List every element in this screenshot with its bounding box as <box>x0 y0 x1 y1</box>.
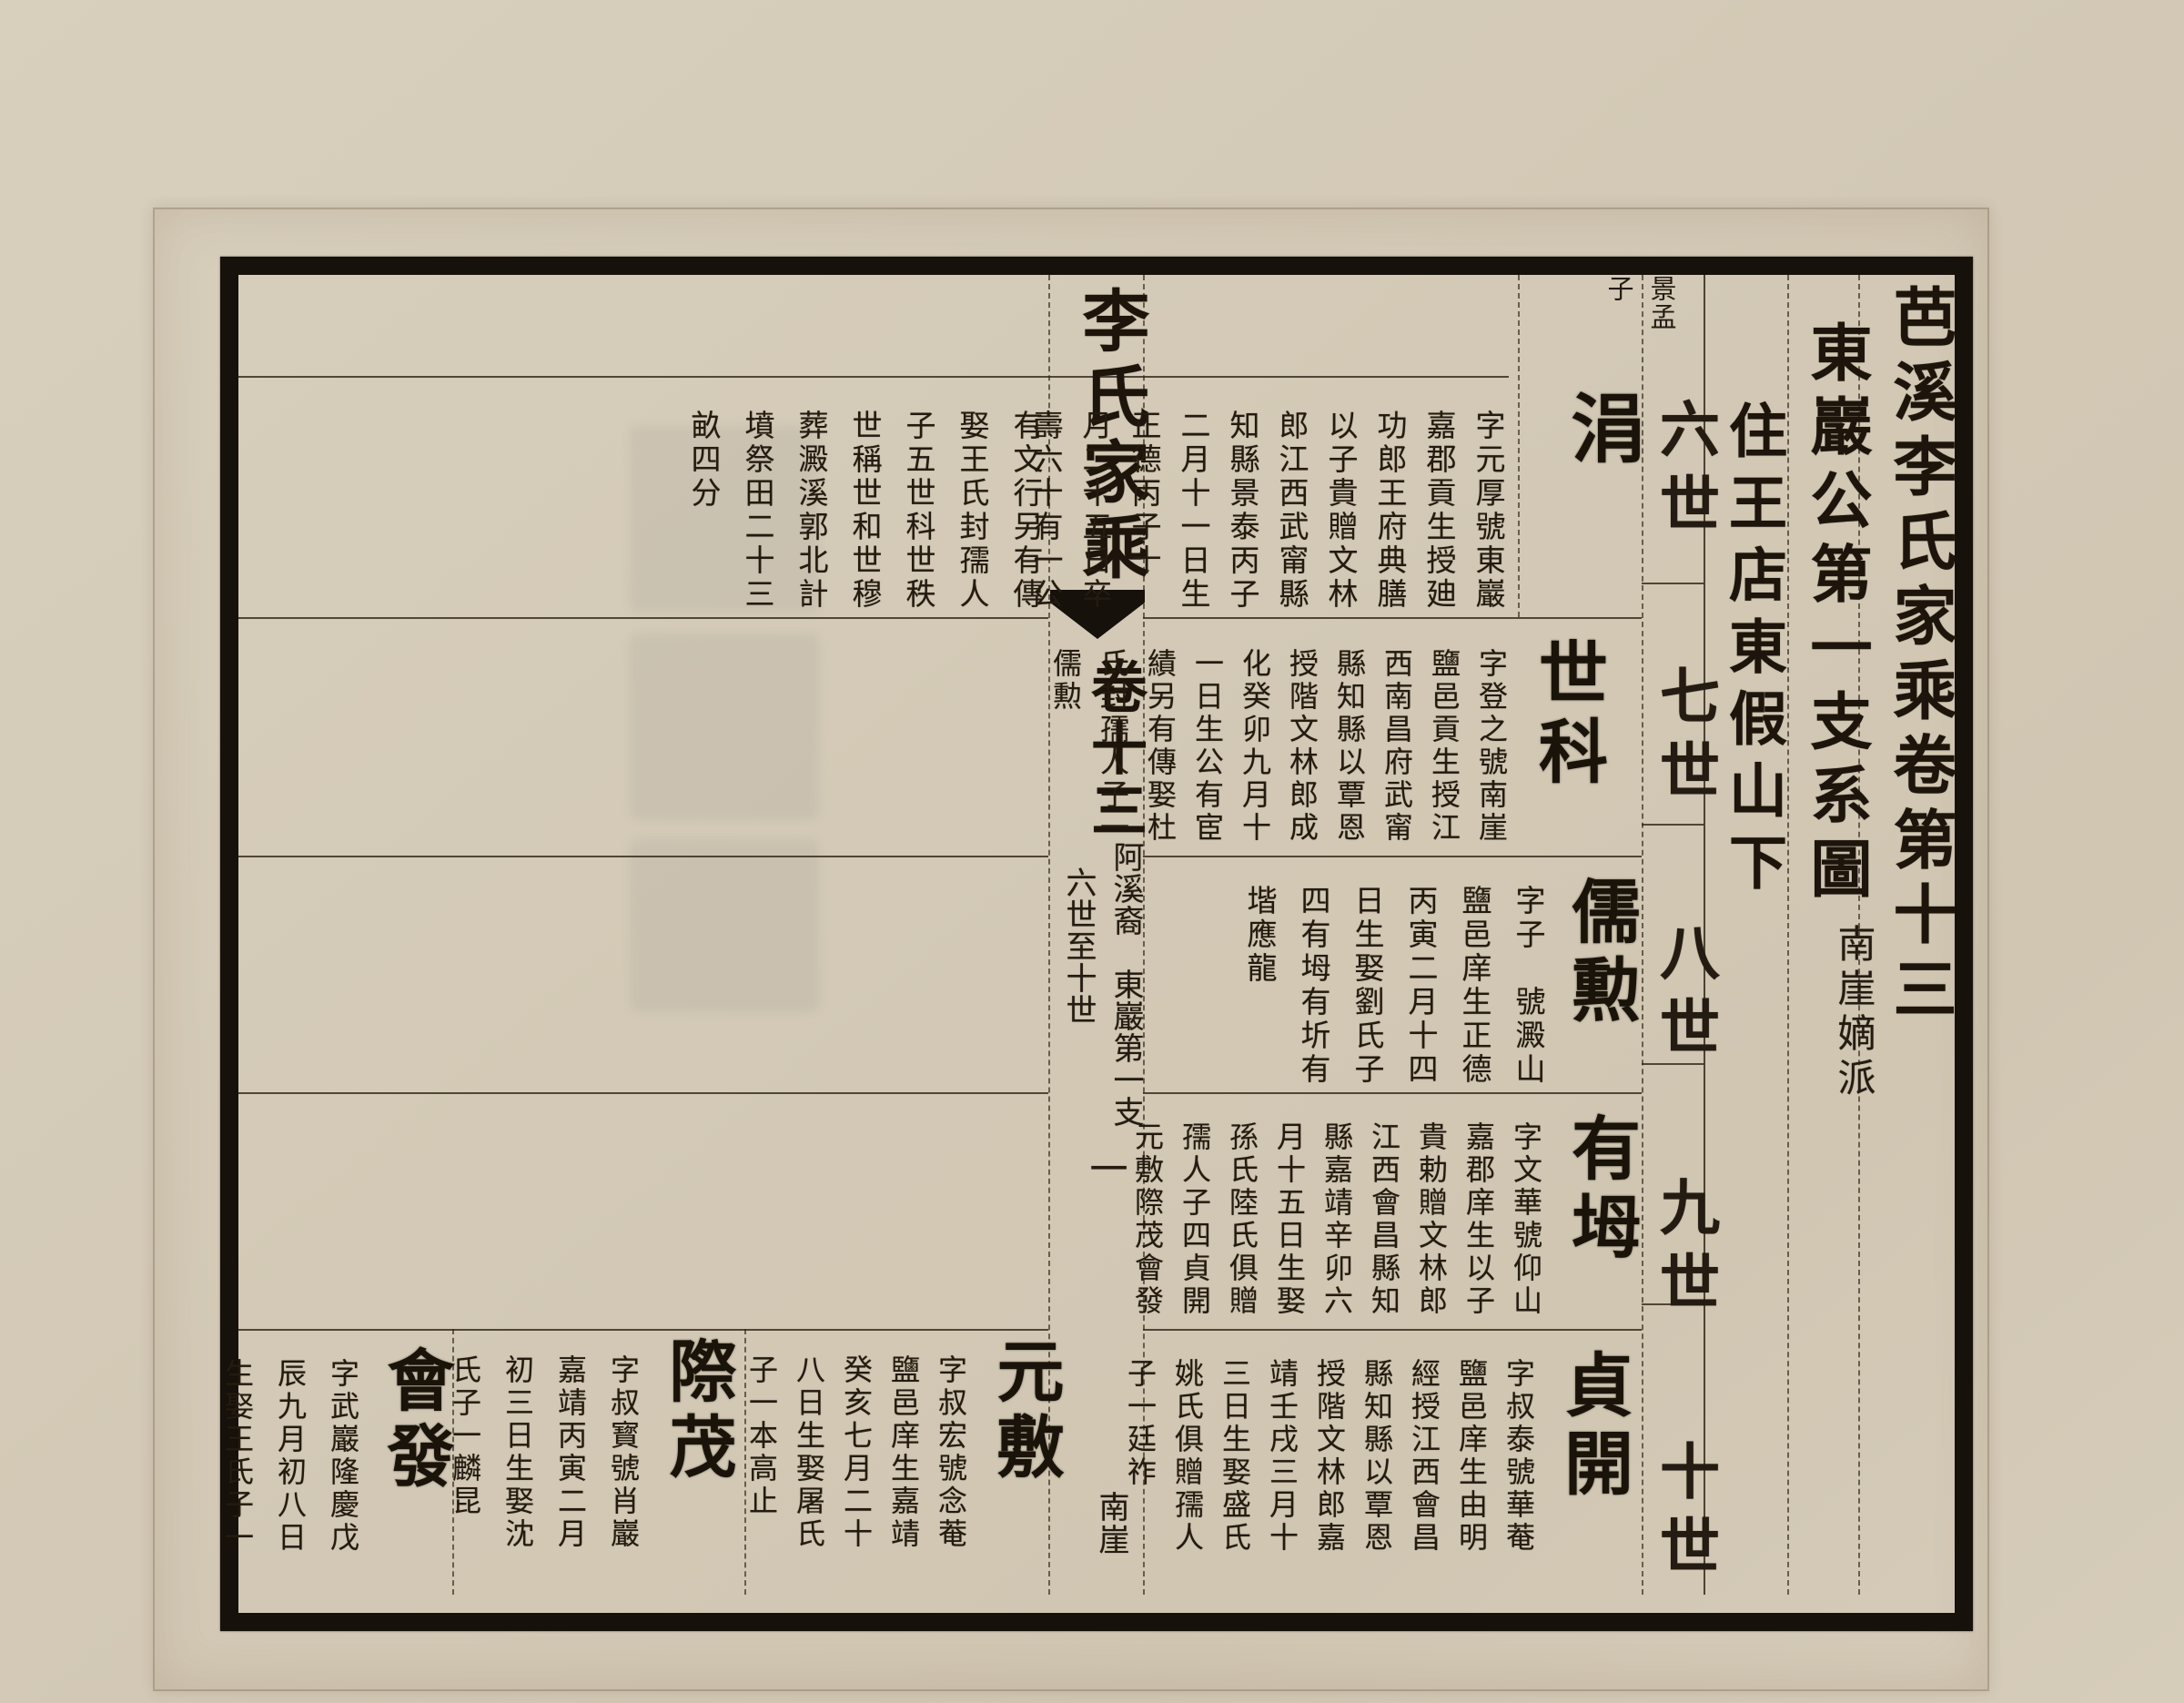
label-cell-divider <box>1642 824 1704 826</box>
bio-column: 縣嘉靖辛卯六 <box>1316 1121 1358 1323</box>
band-divider <box>238 376 1509 378</box>
band-divider <box>238 1092 1048 1094</box>
bio-column: 字子 號澱山 <box>1505 885 1549 1089</box>
bio-column: 子一廷祚 <box>1119 1358 1161 1560</box>
bio-column: 姚氏俱贈孺人 <box>1167 1358 1208 1560</box>
bio-column: 子一本高止 <box>741 1354 783 1556</box>
bio-column: 鹽邑庠生嘉靖 <box>883 1354 925 1556</box>
bio-column: 鹽邑庠生由明 <box>1451 1358 1492 1560</box>
bio-column: 孫氏陸氏俱贈 <box>1221 1121 1263 1323</box>
bio-column: 績另有傳娶杜 <box>1139 648 1181 850</box>
parent-name: 景孟 <box>1642 275 1680 393</box>
person-name-yuanfu: 元敷 <box>976 1336 1073 1487</box>
bio-column: 月十五日生娶 <box>1269 1121 1310 1323</box>
bio-column: 貴勅贈文林郎 <box>1410 1121 1452 1323</box>
bio-column: 日生娶劉氏子 <box>1344 885 1388 1089</box>
person-bio-huifa: 字武巖隆慶戊辰九月初八日生娶王氏子一 <box>238 1358 364 1560</box>
generation-label-10: 十世 <box>1640 1440 1727 1589</box>
band-divider <box>1143 1329 1642 1331</box>
bio-column: 孺人子四貞開 <box>1174 1121 1216 1323</box>
bio-column: 功郎王府典膳 <box>1367 410 1410 624</box>
bio-column: 氏封孺人子一 <box>1092 648 1134 850</box>
branch-subnote: 南崖嫡派 <box>1825 924 1881 1102</box>
person-name-jimao: 際茂 <box>648 1336 745 1487</box>
bio-column: 字元厚號東巖 <box>1465 410 1509 624</box>
bio-column: 鹽邑庠生正德 <box>1451 885 1495 1089</box>
bio-column: 有文行另有傳 <box>1003 410 1046 624</box>
spine-branch-note: 阿溪裔 東巖第一支 <box>1103 841 1148 1128</box>
parent-reference: 景孟 子 <box>1594 275 1680 393</box>
person-bio-yuanfu: 字叔宏號念菴鹽邑庠生嘉靖癸亥七月二十八日生娶屠氏子一本高止 <box>797 1354 972 1556</box>
bio-column: 以子貴贈文林 <box>1318 410 1361 624</box>
generation-label-8: 八世 <box>1640 921 1727 1070</box>
bio-column: 月二十五日卒 <box>1072 410 1116 624</box>
bio-column: 娶王氏封孺人 <box>949 410 993 624</box>
parent-suffix: 子 <box>1599 275 1637 393</box>
bio-column: 三日生娶盛氏 <box>1214 1358 1256 1560</box>
generation-label-9: 九世 <box>1640 1176 1727 1325</box>
genealogy-scan-page: 芭溪李氏家乘卷第十三 東巖公第一支系圖 南崖嫡派 住王店東假山下 六世 七世 八… <box>0 0 2184 1703</box>
person-bio-ruxun: 字子 號澱山鹽邑庠生正德丙寅二月十四日生娶劉氏子四有坶有圻有堦應龍 <box>1299 885 1549 1089</box>
bio-column: 嘉郡庠生以子 <box>1458 1121 1500 1323</box>
bio-column: 辰九月初八日 <box>269 1358 311 1560</box>
bio-column: 四有坶有圻有 <box>1290 885 1334 1089</box>
bio-column: 授階文林郎嘉 <box>1309 1358 1350 1560</box>
cell-divider <box>1518 275 1520 617</box>
band-divider <box>238 856 1048 857</box>
bio-column: 字叔寳號肖巖 <box>602 1354 644 1556</box>
bio-column: 儒勲 <box>1045 648 1087 850</box>
bio-column: 授階文林郎成 <box>1281 648 1323 850</box>
band-divider <box>238 1329 1048 1331</box>
bio-column: 字文華號仰山 <box>1505 1121 1547 1323</box>
person-bio-juan: 字元厚號東巖嘉郡貢生授廸功郎王府典膳以子貴贈文林郎江西武甯縣知縣景泰丙子二月十一… <box>1148 410 1509 624</box>
bio-column: 郎江西武甯縣 <box>1269 410 1312 624</box>
bio-column: 葬澱溪郭北計 <box>788 410 832 624</box>
bio-column: 鹽邑貢生授江 <box>1423 648 1465 850</box>
bio-column: 字武巖隆慶戊 <box>322 1358 364 1560</box>
bio-column: 生娶王氏子一 <box>217 1358 258 1560</box>
person-name-zhenkai: 貞開 <box>1542 1349 1642 1505</box>
band-divider <box>1143 1092 1642 1094</box>
bio-column: 一日生公有宦 <box>1187 648 1228 850</box>
bio-column: 縣知縣以覃恩 <box>1329 648 1370 850</box>
bio-column: 靖壬戌三月十 <box>1261 1358 1303 1560</box>
bio-column: 經授江西會昌 <box>1403 1358 1445 1560</box>
spine-page-number: 一 <box>1077 1149 1133 1187</box>
bio-column: 元敷際茂會發 <box>1127 1121 1168 1323</box>
person-bio-juan-continued: 有文行另有傳娶王氏封孺人子五世科世秩世稱世和世穆葬澱溪郭北計墳祭田二十三畝四分 <box>766 410 1046 624</box>
band-divider <box>1143 856 1642 857</box>
bio-column: 字叔宏號念菴 <box>930 1354 972 1556</box>
bio-column: 丙寅二月十四 <box>1398 885 1441 1089</box>
person-bio-shike: 字登之號南崖鹽邑貢生授江西南昌府武甯縣知縣以覃恩授階文林郎成化癸卯九月十一日生公… <box>1165 648 1512 850</box>
bio-column: 初三日生娶沈 <box>497 1354 539 1556</box>
bio-column: 知縣景泰丙子 <box>1219 410 1263 624</box>
bio-column: 癸亥七月二十 <box>835 1354 877 1556</box>
volume-title: 芭溪李氏家乘卷第十三 <box>1873 284 1965 1030</box>
spine-generation-range: 六世至十世 <box>1056 867 1100 1026</box>
bio-column: 二月十一日生 <box>1170 410 1214 624</box>
person-bio-jimao: 字叔寳號肖巖嘉靖丙寅二月初三日生娶沈氏子一麟昆 <box>475 1354 644 1556</box>
bio-column: 縣知縣以覃恩 <box>1356 1358 1398 1560</box>
bio-column: 畝四分 <box>681 410 724 624</box>
person-name-huifa: 會發 <box>366 1345 463 1496</box>
bio-column: 子五世科世秩 <box>895 410 939 624</box>
bio-column: 八日生娶屠氏 <box>788 1354 830 1556</box>
generation-label-7: 七世 <box>1640 664 1727 814</box>
person-name-youmu: 有坶 <box>1549 1112 1649 1269</box>
bio-column: 嘉郡貢生授廸 <box>1416 410 1460 624</box>
bio-column: 堦應龍 <box>1237 885 1280 1089</box>
person-bio-youmu: 字文華號仰山嘉郡庠生以子貴勅贈文林郎江西會昌縣知縣嘉靖辛卯六月十五日生娶孫氏陸氏… <box>1212 1121 1547 1323</box>
bio-column: 正德丙子十 <box>1121 410 1165 624</box>
bio-column: 江西會昌縣知 <box>1363 1121 1405 1323</box>
label-cell-divider <box>1642 583 1704 584</box>
bio-column: 嘉靖丙寅二月 <box>550 1354 591 1556</box>
bio-column: 墳祭田二十三 <box>734 410 778 624</box>
bio-column: 字叔泰號華菴 <box>1498 1358 1540 1560</box>
bio-column: 西南昌府武甯 <box>1376 648 1418 850</box>
person-name-juan: 涓 <box>1547 390 1655 464</box>
bio-column: 化癸卯九月十 <box>1234 648 1276 850</box>
branch-heading: 東巖公第一支系圖 <box>1791 320 1881 910</box>
bio-column: 世稱世和世穆 <box>842 410 885 624</box>
person-name-ruxun: 儒勲 <box>1549 876 1649 1032</box>
person-name-shike: 世科 <box>1516 637 1616 794</box>
person-bio-zhenkai: 字叔泰號華菴鹽邑庠生由明經授江西會昌縣知縣以覃恩授階文林郎嘉靖壬戌三月十三日生娶… <box>1218 1358 1540 1560</box>
bio-column: 字登之號南崖 <box>1471 648 1512 850</box>
